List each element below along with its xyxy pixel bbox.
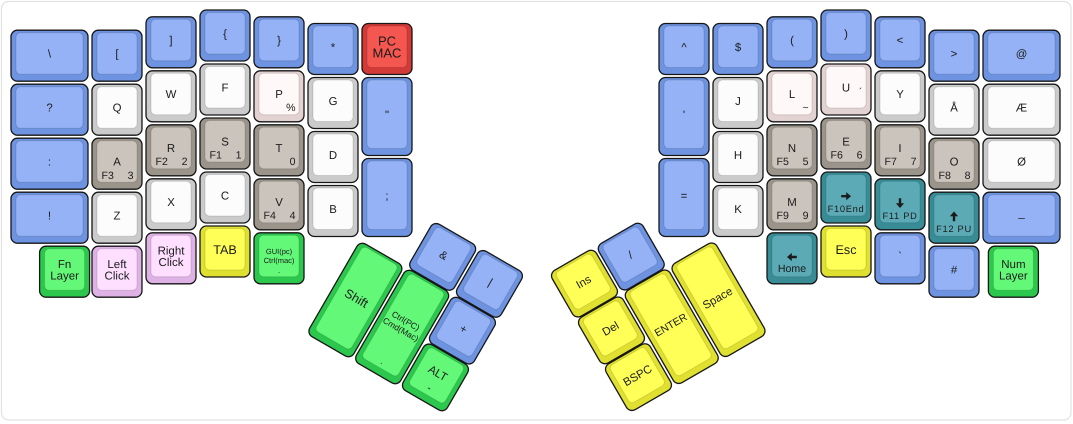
svg-text:F5: F5 <box>777 156 789 168</box>
svg-text:): ) <box>844 28 848 40</box>
svg-text:F12 PU: F12 PU <box>936 224 972 234</box>
svg-text:;: ; <box>385 190 388 202</box>
svg-text:G: G <box>329 96 338 108</box>
svg-text:{: { <box>223 28 227 40</box>
svg-text:!: ! <box>48 211 51 223</box>
svg-text:T: T <box>276 143 283 155</box>
svg-text:F2: F2 <box>156 156 168 168</box>
svg-text:7: 7 <box>911 156 917 168</box>
svg-text:$: $ <box>735 42 742 54</box>
svg-text:=: = <box>681 190 688 202</box>
svg-text:Ø: Ø <box>1017 157 1026 169</box>
svg-text:": " <box>385 109 389 121</box>
svg-text:Right: Right <box>158 245 186 257</box>
svg-text:TAB: TAB <box>213 243 237 257</box>
svg-text:4: 4 <box>290 210 296 222</box>
svg-text:H: H <box>734 150 742 162</box>
svg-text:F4: F4 <box>264 210 276 222</box>
svg-text:A: A <box>113 157 121 169</box>
svg-text:2: 2 <box>182 156 188 168</box>
svg-text:Esc: Esc <box>836 243 857 257</box>
svg-text:F3: F3 <box>102 170 114 182</box>
svg-text:MAC: MAC <box>373 45 402 60</box>
svg-text:Q: Q <box>113 103 122 115</box>
svg-text:.: . <box>278 266 280 275</box>
svg-text:F1: F1 <box>210 150 222 162</box>
svg-text:Å: Å <box>950 102 958 115</box>
svg-text:Left: Left <box>107 259 127 271</box>
svg-text:?: ? <box>46 103 52 115</box>
svg-text:]: ] <box>169 35 172 47</box>
svg-text:Home: Home <box>778 263 806 275</box>
svg-text:_: _ <box>1017 208 1025 220</box>
svg-text:5: 5 <box>803 156 809 168</box>
svg-text:W: W <box>166 89 177 101</box>
svg-text:(: ( <box>790 35 794 47</box>
svg-text:Z: Z <box>114 211 121 223</box>
svg-text:*: * <box>331 42 336 54</box>
svg-text:Fn: Fn <box>58 259 71 271</box>
svg-text:0: 0 <box>290 156 296 168</box>
svg-text:^: ^ <box>681 42 687 54</box>
svg-text:O: O <box>950 157 959 169</box>
svg-text:J: J <box>735 96 741 108</box>
svg-text:B: B <box>329 204 337 216</box>
svg-text:U: U <box>842 82 850 94</box>
svg-text:9: 9 <box>803 210 809 222</box>
svg-text:}: } <box>277 35 281 47</box>
svg-text:>: > <box>951 49 958 61</box>
svg-text:F6: F6 <box>831 150 843 162</box>
svg-text:X: X <box>167 197 175 209</box>
svg-text:P: P <box>275 89 283 101</box>
svg-text:GUI(pc): GUI(pc) <box>266 247 293 256</box>
svg-text:F11 PD: F11 PD <box>882 211 917 221</box>
svg-text:~: ~ <box>802 102 808 114</box>
svg-text:L: L <box>789 89 795 101</box>
svg-text:D: D <box>329 150 337 162</box>
svg-text:E: E <box>842 136 850 148</box>
svg-text:V: V <box>275 197 283 209</box>
svg-text:@: @ <box>1016 49 1028 61</box>
svg-text:Click: Click <box>105 270 130 282</box>
svg-text:6: 6 <box>857 150 863 162</box>
svg-text:Click: Click <box>159 257 184 269</box>
svg-text:F8: F8 <box>939 170 951 182</box>
svg-text:<: < <box>897 35 904 47</box>
svg-text::: : <box>48 157 51 169</box>
svg-text:Æ: Æ <box>1016 103 1027 115</box>
svg-text:F: F <box>222 82 229 94</box>
svg-text:F9: F9 <box>777 210 789 222</box>
svg-text:N: N <box>788 143 796 155</box>
svg-text:F7: F7 <box>885 156 897 168</box>
svg-text:`: ` <box>898 251 902 263</box>
svg-text:1: 1 <box>236 150 242 162</box>
svg-text:3: 3 <box>128 170 134 182</box>
svg-text:%: % <box>286 102 296 114</box>
svg-text:Y: Y <box>896 89 904 101</box>
svg-text:Layer: Layer <box>999 270 1028 282</box>
svg-text:C: C <box>221 190 229 202</box>
svg-text:#: # <box>951 265 958 277</box>
svg-text:Num: Num <box>1001 259 1025 271</box>
svg-text:Ctrl(mac): Ctrl(mac) <box>264 256 295 265</box>
svg-text:I: I <box>898 143 901 155</box>
svg-text:F10End: F10End <box>828 204 865 214</box>
svg-text:S: S <box>221 136 229 148</box>
svg-text:K: K <box>734 204 742 216</box>
svg-text:': ' <box>683 109 685 121</box>
svg-text:Layer: Layer <box>50 270 79 282</box>
svg-text:´: ´ <box>859 87 863 99</box>
svg-text:8: 8 <box>965 170 971 182</box>
svg-text:M: M <box>787 197 797 209</box>
svg-text:R: R <box>167 143 175 155</box>
